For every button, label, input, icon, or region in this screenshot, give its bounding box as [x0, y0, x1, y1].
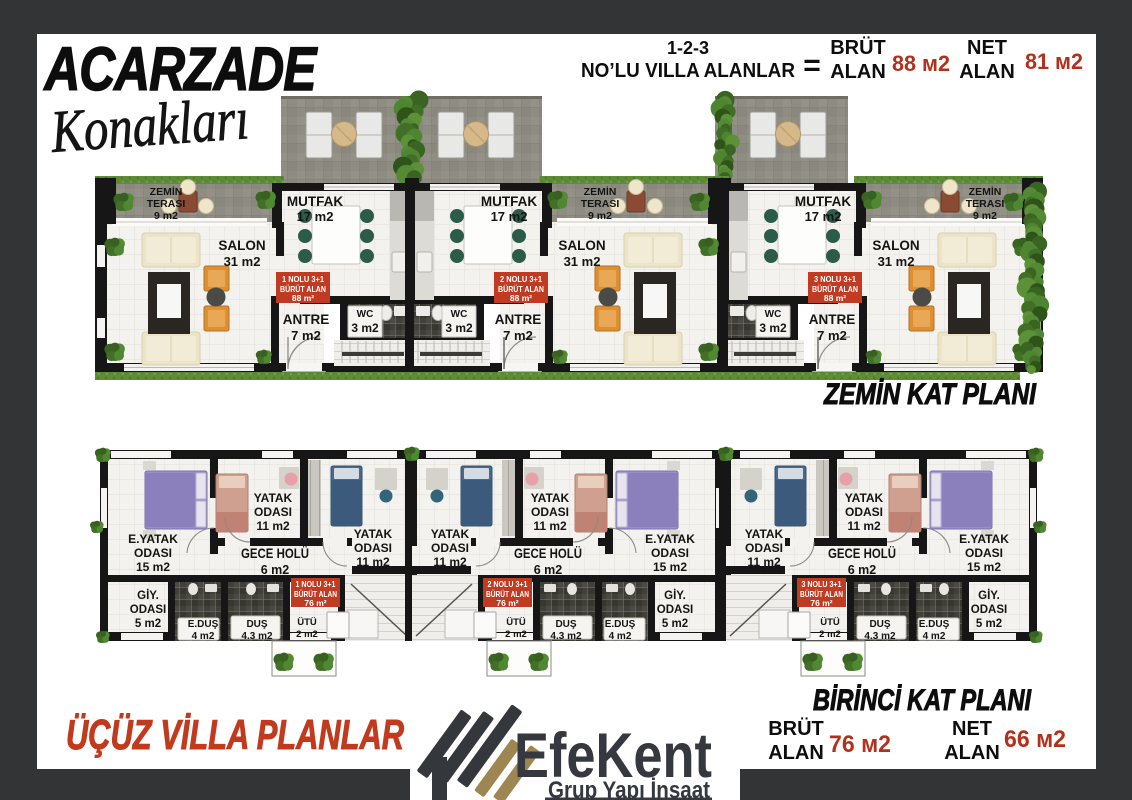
- svg-text:Grup Yapı İnşaat: Grup Yapı İnşaat: [548, 777, 710, 800]
- svg-text:66 м2: 66 м2: [1004, 726, 1066, 753]
- svg-text:5 m2: 5 m2: [662, 618, 688, 630]
- svg-text:NET: NET: [967, 37, 1007, 59]
- svg-text:76 м2: 76 м2: [829, 731, 891, 758]
- svg-text:ALAN: ALAN: [944, 742, 1000, 764]
- svg-text:ODASI: ODASI: [130, 604, 166, 616]
- svg-text:31 m2: 31 m2: [224, 254, 261, 269]
- svg-text:GECE HOLÜ: GECE HOLÜ: [828, 545, 896, 561]
- svg-text:7 m2: 7 m2: [817, 328, 847, 343]
- svg-text:ZEMİN: ZEMİN: [969, 185, 1002, 198]
- svg-text:9 m2: 9 m2: [154, 210, 178, 222]
- svg-text:YATAK: YATAK: [745, 527, 784, 541]
- svg-text:DUŞ: DUŞ: [246, 619, 267, 630]
- svg-text:SALON: SALON: [218, 238, 265, 253]
- svg-text:11 m2: 11 m2: [847, 519, 881, 533]
- svg-text:2 NOLU 3+1: 2 NOLU 3+1: [500, 275, 543, 284]
- svg-text:GECE HOLÜ: GECE HOLÜ: [514, 545, 582, 561]
- svg-text:7 m2: 7 m2: [291, 328, 321, 343]
- svg-text:88 m²: 88 m²: [510, 293, 532, 303]
- svg-text:MUTFAK: MUTFAK: [795, 194, 851, 209]
- svg-text:ALAN: ALAN: [830, 61, 886, 83]
- svg-text:4.3 m2: 4.3 m2: [550, 631, 582, 642]
- svg-text:E.YATAK: E.YATAK: [645, 532, 695, 546]
- svg-text:15 m2: 15 m2: [967, 560, 1001, 574]
- svg-text:3 m2: 3 m2: [351, 321, 379, 335]
- svg-text:MUTFAK: MUTFAK: [481, 194, 537, 209]
- svg-text:ODASI: ODASI: [971, 604, 1007, 616]
- svg-text:ODASI: ODASI: [431, 541, 469, 555]
- svg-text:17 m2: 17 m2: [805, 209, 842, 224]
- svg-text:ODASI: ODASI: [354, 541, 392, 555]
- svg-text:81 м2: 81 м2: [1025, 49, 1083, 74]
- svg-text:BRÜT: BRÜT: [830, 36, 886, 59]
- svg-text:YATAK: YATAK: [845, 491, 884, 505]
- svg-text:WC: WC: [451, 309, 468, 320]
- svg-text:SALON: SALON: [872, 238, 919, 253]
- svg-text:WC: WC: [765, 309, 782, 320]
- svg-text:76 m²: 76 m²: [810, 598, 832, 608]
- svg-text:YATAK: YATAK: [254, 491, 293, 505]
- svg-text:76 m²: 76 m²: [496, 598, 518, 608]
- svg-text:ODASI: ODASI: [845, 505, 883, 519]
- svg-text:4 m2: 4 m2: [609, 631, 632, 642]
- svg-text:E.DUŞ: E.DUŞ: [188, 619, 219, 630]
- svg-text:31 m2: 31 m2: [878, 254, 915, 269]
- svg-text:ÜTÜ: ÜTÜ: [820, 617, 840, 628]
- svg-text:E.YATAK: E.YATAK: [959, 532, 1009, 546]
- svg-text:SALON: SALON: [558, 238, 605, 253]
- svg-text:15 m2: 15 m2: [136, 560, 170, 574]
- svg-text:2 NOLU 3+1: 2 NOLU 3+1: [488, 580, 528, 589]
- svg-text:ANTRE: ANTRE: [283, 312, 330, 327]
- svg-text:88 m²: 88 m²: [292, 293, 314, 303]
- svg-text:=: =: [803, 49, 821, 82]
- svg-text:11 m2: 11 m2: [747, 555, 781, 569]
- svg-text:3 m2: 3 m2: [445, 321, 473, 335]
- svg-text:ÜTÜ: ÜTÜ: [297, 617, 317, 628]
- svg-text:Konakları: Konakları: [48, 85, 251, 165]
- svg-text:GECE HOLÜ: GECE HOLÜ: [241, 545, 309, 561]
- svg-text:GİY.: GİY.: [137, 589, 159, 602]
- svg-text:ODASI: ODASI: [651, 546, 689, 560]
- svg-text:E.YATAK: E.YATAK: [128, 532, 178, 546]
- svg-text:5 m2: 5 m2: [135, 618, 161, 630]
- svg-text:TERASI: TERASI: [147, 198, 186, 210]
- svg-text:17 m2: 17 m2: [297, 209, 334, 224]
- svg-text:TERASI: TERASI: [581, 198, 620, 210]
- svg-text:BİRİNCİ KAT PLANI: BİRİNCİ KAT PLANI: [813, 684, 1032, 717]
- svg-text:1-2-3: 1-2-3: [667, 38, 709, 58]
- svg-text:17 m2: 17 m2: [491, 209, 528, 224]
- svg-text:3 NOLU 3+1: 3 NOLU 3+1: [814, 275, 857, 284]
- svg-text:4 m2: 4 m2: [923, 631, 946, 642]
- svg-text:GİY.: GİY.: [664, 589, 686, 602]
- svg-text:ODASI: ODASI: [531, 505, 569, 519]
- svg-text:ZEMİN: ZEMİN: [150, 185, 183, 198]
- svg-text:31 m2: 31 m2: [564, 254, 601, 269]
- svg-text:ANTRE: ANTRE: [809, 312, 856, 327]
- svg-text:DUŞ: DUŞ: [555, 619, 576, 630]
- svg-text:3 m2: 3 m2: [759, 321, 787, 335]
- svg-text:6 m2: 6 m2: [848, 563, 877, 577]
- svg-text:11 m2: 11 m2: [256, 519, 290, 533]
- svg-text:5 m2: 5 m2: [976, 618, 1002, 630]
- svg-text:6 m2: 6 m2: [261, 563, 290, 577]
- svg-text:4.3 m2: 4.3 m2: [241, 631, 273, 642]
- svg-text:GİY.: GİY.: [978, 589, 1000, 602]
- svg-text:WC: WC: [357, 309, 374, 320]
- svg-text:ÜTÜ: ÜTÜ: [506, 617, 526, 628]
- svg-text:ANTRE: ANTRE: [495, 312, 542, 327]
- svg-text:NET: NET: [952, 718, 992, 740]
- svg-text:E.DUŞ: E.DUŞ: [605, 619, 636, 630]
- svg-text:ODASI: ODASI: [254, 505, 292, 519]
- svg-text:ÜÇÜZ VİLLA PLANLAR: ÜÇÜZ VİLLA PLANLAR: [66, 711, 404, 758]
- svg-text:NO’LU VILLA ALANLAR: NO’LU VILLA ALANLAR: [581, 60, 796, 82]
- svg-text:4 m2: 4 m2: [192, 631, 215, 642]
- svg-text:11 m2: 11 m2: [433, 555, 467, 569]
- svg-text:MUTFAK: MUTFAK: [287, 194, 343, 209]
- svg-text:9 m2: 9 m2: [588, 210, 612, 222]
- svg-text:2 m2: 2 m2: [296, 629, 318, 640]
- svg-text:88 м2: 88 м2: [892, 51, 950, 76]
- svg-text:ODASI: ODASI: [745, 541, 783, 555]
- svg-text:ALAN: ALAN: [768, 742, 824, 764]
- svg-text:ODASI: ODASI: [965, 546, 1003, 560]
- svg-text:E.DUŞ: E.DUŞ: [919, 619, 950, 630]
- svg-text:7 m2: 7 m2: [503, 328, 533, 343]
- svg-text:ZEMİN: ZEMİN: [584, 185, 617, 198]
- svg-text:TERASI: TERASI: [966, 198, 1005, 210]
- svg-text:YATAK: YATAK: [431, 527, 470, 541]
- svg-text:DUŞ: DUŞ: [869, 619, 890, 630]
- svg-text:4.3 m2: 4.3 m2: [864, 631, 896, 642]
- svg-text:1 NOLU 3+1: 1 NOLU 3+1: [296, 580, 336, 589]
- svg-text:15 m2: 15 m2: [653, 560, 687, 574]
- svg-text:88 m²: 88 m²: [824, 293, 846, 303]
- svg-text:2 m2: 2 m2: [505, 629, 527, 640]
- svg-text:ODASI: ODASI: [657, 604, 693, 616]
- svg-text:ZEMİN KAT PLANI: ZEMİN KAT PLANI: [823, 378, 1036, 411]
- svg-text:1 NOLU 3+1: 1 NOLU 3+1: [282, 275, 325, 284]
- svg-text:11 m2: 11 m2: [356, 555, 390, 569]
- svg-text:76 m²: 76 m²: [304, 598, 326, 608]
- svg-text:3 NOLU 3+1: 3 NOLU 3+1: [802, 580, 842, 589]
- svg-text:YATAK: YATAK: [531, 491, 570, 505]
- svg-text:2 m2: 2 m2: [819, 629, 841, 640]
- svg-text:BRÜT: BRÜT: [768, 717, 824, 740]
- svg-text:YATAK: YATAK: [354, 527, 393, 541]
- svg-text:ODASI: ODASI: [134, 546, 172, 560]
- svg-text:11 m2: 11 m2: [533, 519, 567, 533]
- svg-text:6 m2: 6 m2: [534, 563, 563, 577]
- svg-text:9 m2: 9 m2: [973, 210, 997, 222]
- svg-text:ALAN: ALAN: [959, 61, 1015, 83]
